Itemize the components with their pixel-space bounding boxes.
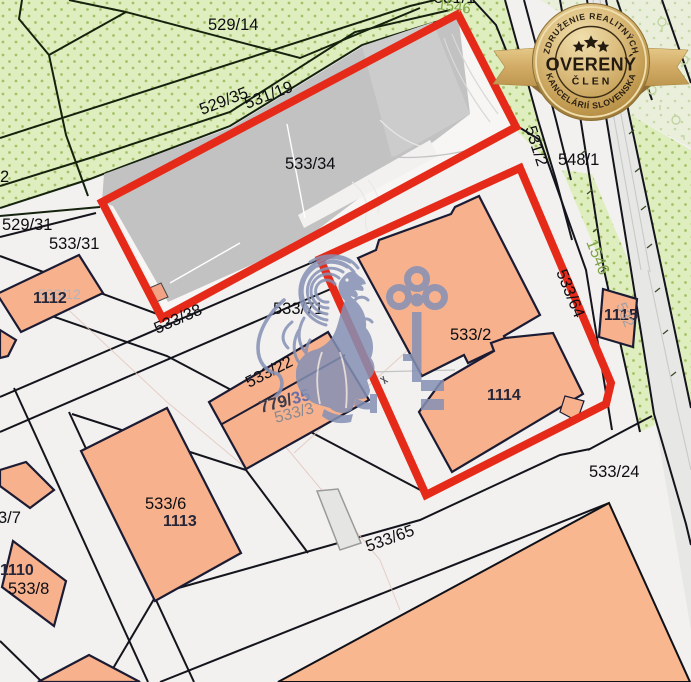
svg-text:1110: 1110: [0, 562, 34, 579]
svg-text:1112: 1112: [33, 290, 67, 307]
svg-text:533/24: 533/24: [589, 463, 639, 481]
svg-text:533/31: 533/31: [49, 235, 99, 253]
svg-text:3/7: 3/7: [0, 509, 21, 527]
svg-text:ČLEN: ČLEN: [572, 75, 613, 88]
svg-text:OVERENÝ: OVERENÝ: [546, 54, 637, 75]
svg-text:533/8: 533/8: [8, 580, 49, 598]
svg-text:533/34: 533/34: [285, 155, 335, 173]
svg-text:529/14: 529/14: [208, 16, 258, 34]
svg-text:548/1: 548/1: [558, 151, 599, 169]
svg-text:1114: 1114: [487, 387, 521, 404]
svg-text:2: 2: [0, 168, 9, 186]
svg-text:529/31: 529/31: [2, 216, 52, 234]
svg-text:533/6: 533/6: [145, 495, 186, 513]
svg-text:533/2: 533/2: [450, 326, 491, 344]
svg-text:1113: 1113: [163, 513, 197, 530]
